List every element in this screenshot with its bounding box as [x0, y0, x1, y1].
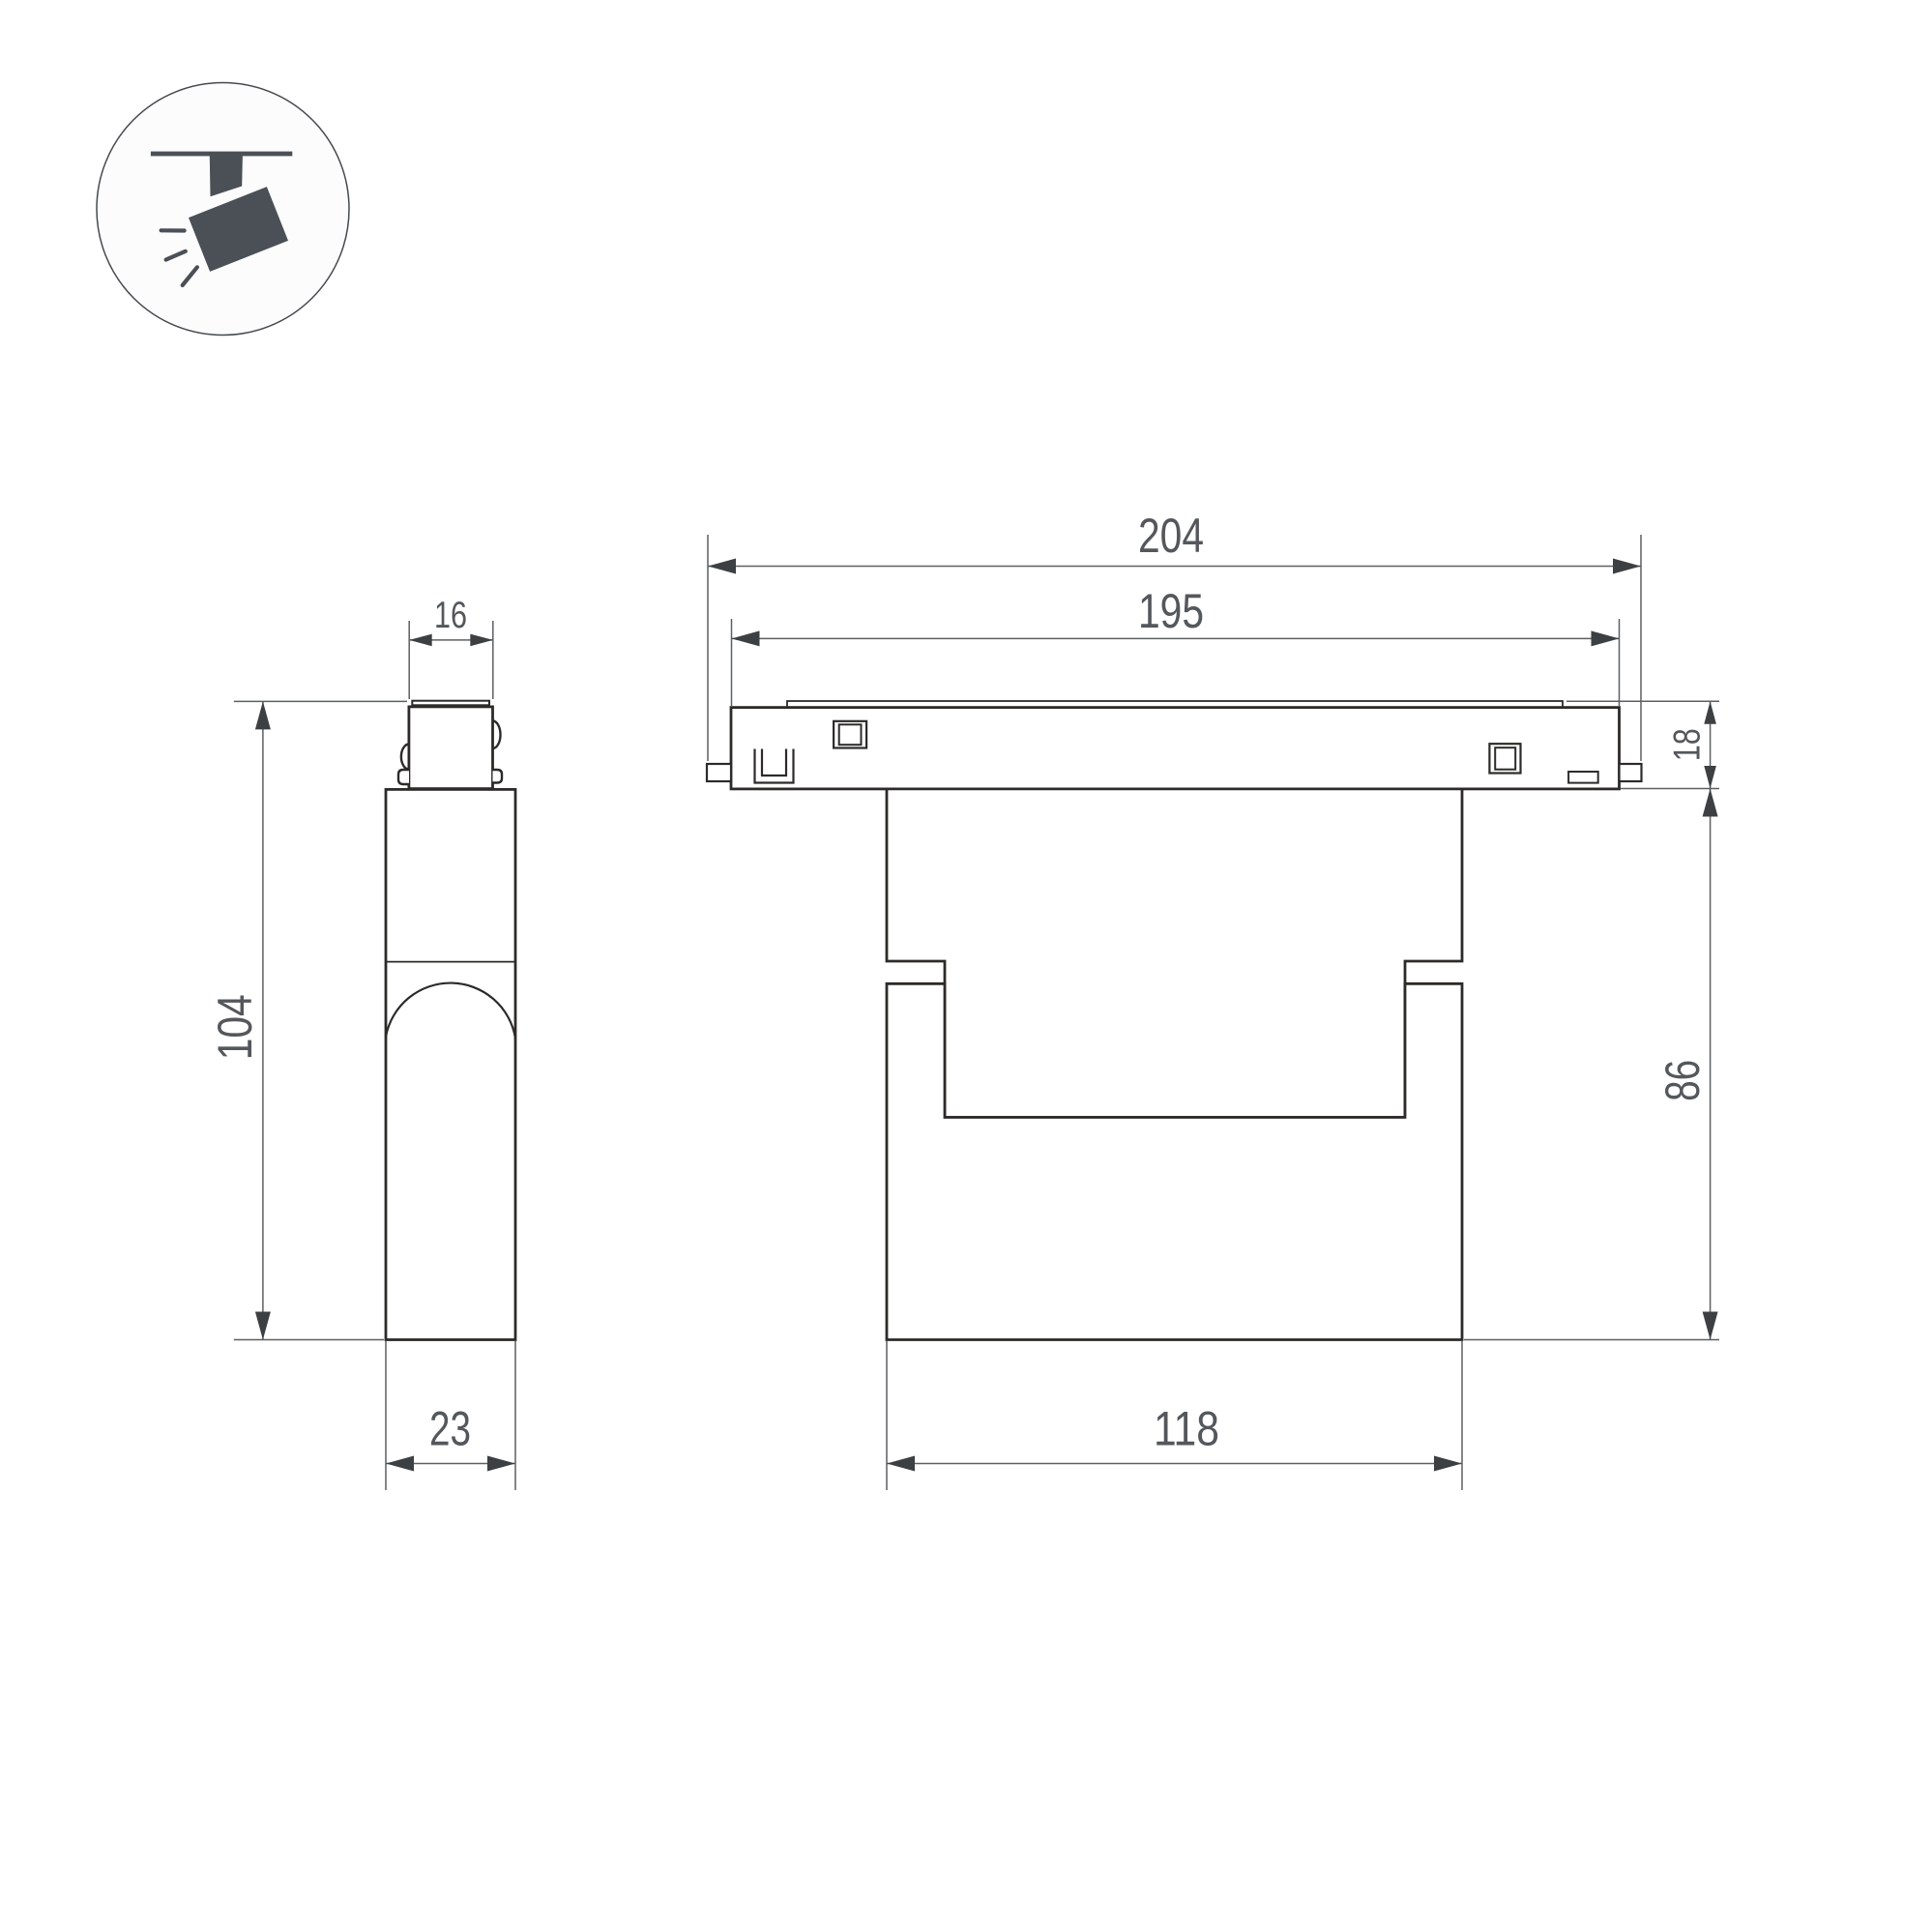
- svg-text:204: 204: [1138, 509, 1204, 563]
- svg-text:118: 118: [1154, 1402, 1219, 1456]
- svg-text:86: 86: [1655, 1060, 1710, 1101]
- svg-text:104: 104: [208, 994, 262, 1060]
- svg-text:23: 23: [429, 1402, 471, 1456]
- svg-text:16: 16: [434, 595, 467, 636]
- svg-text:18: 18: [1667, 728, 1709, 761]
- svg-text:195: 195: [1138, 584, 1204, 638]
